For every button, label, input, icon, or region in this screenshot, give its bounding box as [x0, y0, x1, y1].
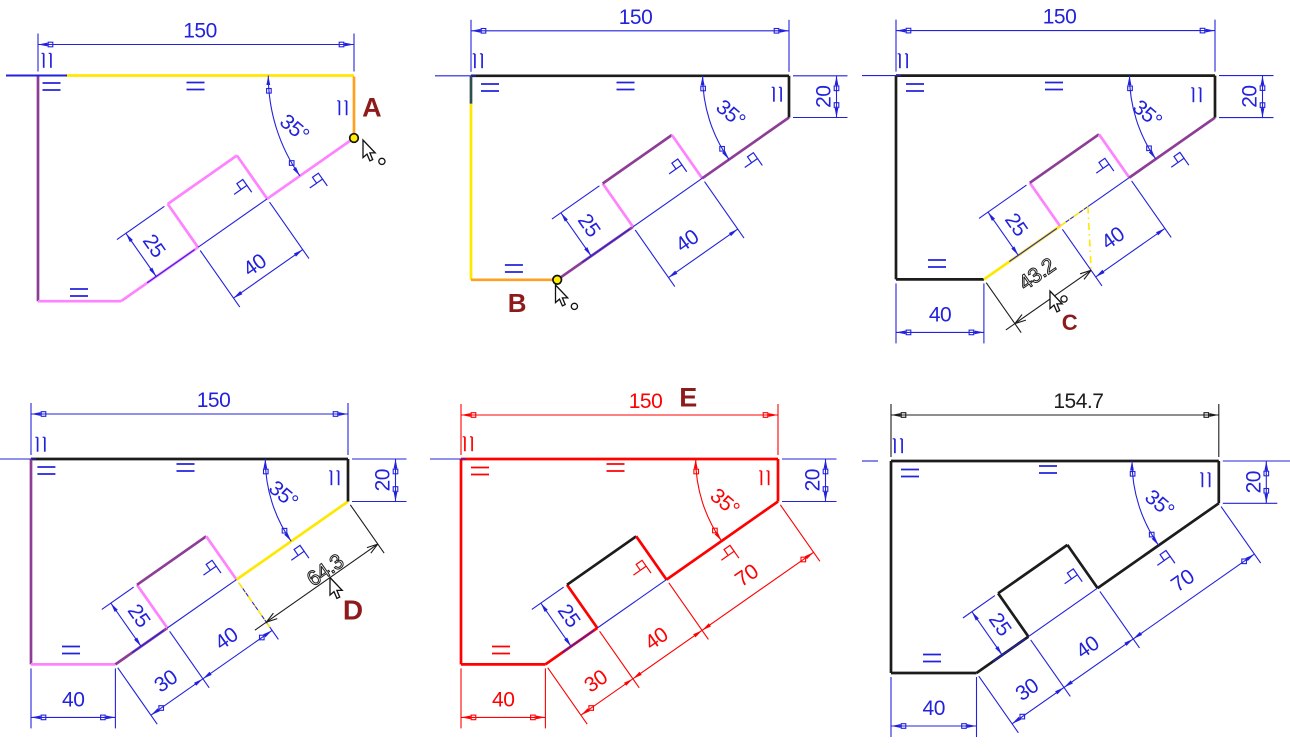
- svg-text:40: 40: [923, 697, 945, 720]
- svg-text:150: 150: [619, 6, 653, 29]
- svg-text:20: 20: [372, 469, 395, 491]
- svg-text:150: 150: [183, 20, 217, 43]
- svg-text:20: 20: [1239, 85, 1262, 107]
- svg-text:D: D: [343, 595, 363, 626]
- svg-text:A: A: [362, 93, 382, 123]
- svg-text:20: 20: [813, 86, 836, 108]
- svg-text:B: B: [508, 288, 527, 318]
- svg-text:40: 40: [492, 688, 514, 711]
- svg-text:20: 20: [1242, 471, 1265, 493]
- svg-text:E: E: [679, 383, 697, 413]
- svg-text:40: 40: [929, 303, 951, 326]
- svg-text:20: 20: [802, 469, 825, 491]
- svg-text:150: 150: [197, 389, 231, 412]
- svg-text:C: C: [1062, 310, 1078, 335]
- svg-text:154.7: 154.7: [1053, 390, 1103, 413]
- svg-text:40: 40: [62, 688, 84, 711]
- svg-text:150: 150: [629, 390, 663, 413]
- svg-text:150: 150: [1043, 6, 1077, 29]
